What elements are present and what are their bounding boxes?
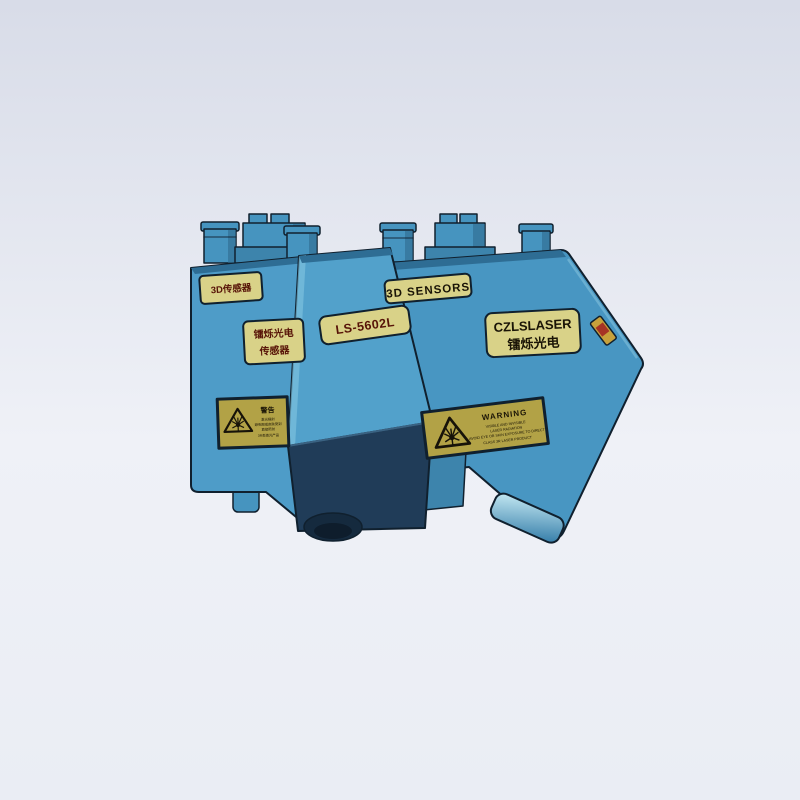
connector-cylinder	[201, 222, 239, 263]
brand-label-cn: 镭烁光电	[506, 335, 560, 353]
label-left-top: 3D传感器	[199, 272, 263, 304]
warning-left-line: 直接照射	[261, 426, 275, 431]
warning-left-line: 3R类激光产品	[258, 432, 280, 438]
label-left-side: 镭烁光电 传感器	[243, 318, 305, 364]
lens-aperture	[314, 523, 352, 539]
warning-label-left: 警告 激光辐射 避免眼或皮肤受到 直接照射 3R类激光产品	[217, 397, 289, 448]
warning-left-line: 激光辐射	[261, 416, 275, 421]
label-brand: CZLSLASER 镭烁光电	[485, 309, 581, 358]
warning-left-line: 避免眼或皮肤受到	[254, 421, 282, 427]
render-viewport[interactable]: 3D传感器 镭烁光电 传感器 LS-5602L 3D SENSORS CZLSL…	[0, 0, 800, 800]
sensor-3d-model: 3D传感器 镭烁光电 传感器 LS-5602L 3D SENSORS CZLSL…	[0, 0, 800, 800]
